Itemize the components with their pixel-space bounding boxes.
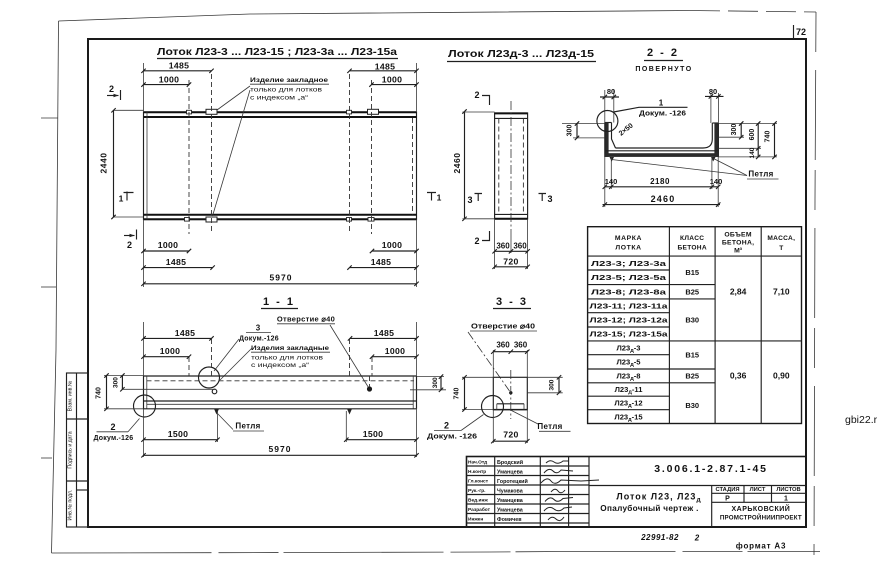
svg-text:Докум. -126: Докум. -126 [427,434,477,441]
svg-text:72: 72 [796,27,806,37]
svg-text:ЛОТКА: ЛОТКА [615,245,641,252]
svg-text:2: 2 [694,534,700,543]
svg-text:В25: В25 [685,288,699,297]
svg-text:Т: Т [779,245,783,252]
svg-text:2: 2 [109,84,114,94]
svg-text:740: 740 [765,131,772,143]
svg-text:Нач.Отд: Нач.Отд [468,460,487,466]
svg-text:Уманцева: Уманцева [497,469,524,475]
svg-text:Инв.№ подл.: Инв.№ подл. [68,490,74,521]
svg-text:Бродский: Бродский [497,459,523,466]
svg-text:Рук.-гр.: Рук.-гр. [468,488,485,494]
svg-text:720: 720 [503,430,518,440]
svg-text:300: 300 [549,379,556,390]
svg-text:Лоток Л23д-3 ... Л23д-15: Лоток Л23д-3 ... Л23д-15 [448,49,595,60]
svg-text:1000: 1000 [159,74,180,84]
svg-text:3: 3 [256,324,261,333]
svg-text:1000: 1000 [385,346,406,356]
svg-text:300: 300 [432,377,439,388]
svg-text:0,36: 0,36 [730,371,747,381]
svg-text:только для лотков: только для лотков [250,87,322,94]
svg-text:Л23-5; Л23-5а: Л23-5; Л23-5а [591,273,667,282]
svg-text:80: 80 [709,87,717,96]
svg-text:1485: 1485 [169,61,190,71]
svg-text:1500: 1500 [168,429,189,439]
svg-text:Уманцева: Уманцева [497,498,524,504]
svg-text:СТАДИЯ: СТАДИЯ [715,487,739,493]
svg-text:1485: 1485 [374,328,395,338]
svg-text:с индексом „а“: с индексом „а“ [250,95,309,102]
svg-text:Инжен: Инжен [468,517,483,523]
svg-text:Разработ: Разработ [468,506,491,513]
svg-text:только для лотков: только для лотков [251,355,323,362]
svg-text:3.006.1-2.87.1-45: 3.006.1-2.87.1-45 [654,463,768,475]
svg-text:Л23д-5: Л23д-5 [616,358,641,369]
svg-text:3: 3 [547,194,552,204]
svg-text:МАССА,: МАССА, [767,235,795,242]
svg-text:Н.контр: Н.контр [468,469,486,475]
svg-text:1500: 1500 [363,429,384,439]
svg-text:2460: 2460 [651,194,676,204]
svg-text:300: 300 [731,124,738,136]
svg-text:1: 1 [659,99,664,108]
svg-text:140: 140 [749,147,756,158]
svg-text:1 - 1: 1 - 1 [263,296,295,308]
svg-text:ЛИСТ: ЛИСТ [750,487,766,493]
svg-text:В25: В25 [685,372,699,381]
svg-text:600: 600 [749,129,756,141]
svg-text:БЕТОНА: БЕТОНА [677,245,706,252]
svg-text:Р: Р [725,496,730,503]
svg-text:22991-82: 22991-82 [640,533,679,542]
svg-text:Подпись и дата: Подпись и дата [68,431,74,468]
svg-text:2: 2 [444,421,449,431]
svg-text:МАРКА: МАРКА [615,235,642,242]
svg-text:БЕТОНА,: БЕТОНА, [722,240,755,247]
svg-text:2460: 2460 [452,153,462,174]
svg-text:ОБЪЕМ: ОБЪЕМ [724,232,752,239]
svg-text:Взам. инв.№: Взам. инв.№ [68,380,74,411]
svg-text:1485: 1485 [375,62,396,72]
svg-text:Л23-8; Л23-8а: Л23-8; Л23-8а [591,288,667,297]
svg-text:В30: В30 [685,401,699,410]
svg-text:720: 720 [503,256,518,266]
svg-text:1000: 1000 [382,74,403,84]
svg-text:Л23д-8: Л23д-8 [616,372,640,383]
svg-text:В30: В30 [685,316,699,325]
svg-text:Докум.-126: Докум.-126 [94,435,134,442]
svg-text:740: 740 [96,387,103,399]
svg-text:1000: 1000 [160,346,181,356]
svg-text:3 - 3: 3 - 3 [496,296,528,308]
svg-text:2: 2 [110,422,115,432]
svg-text:В15: В15 [685,268,699,277]
svg-text:Изделия закладные: Изделия закладные [251,345,329,352]
svg-text:140: 140 [605,177,618,186]
svg-text:80: 80 [607,87,615,96]
svg-text:Петля: Петля [235,422,260,431]
svg-text:ХАРЬКОВСКИЙ: ХАРЬКОВСКИЙ [731,504,790,513]
svg-text:3: 3 [467,195,472,205]
svg-text:Л23д-3: Л23д-3 [616,344,640,355]
svg-text:1000: 1000 [158,240,179,250]
svg-text:1485: 1485 [371,257,392,267]
svg-text:360: 360 [513,242,527,251]
svg-text:300: 300 [567,125,574,137]
svg-text:gbi22.ru: gbi22.ru [845,414,877,426]
svg-text:1: 1 [784,496,788,503]
svg-text:1: 1 [119,194,124,204]
svg-text:740: 740 [454,388,461,400]
svg-text:Гл.конст: Гл.конст [468,479,489,485]
svg-text:2: 2 [127,240,132,250]
svg-text:360: 360 [496,242,510,251]
svg-text:Вед.инж: Вед.инж [468,498,488,504]
svg-text:ЛИСТОВ: ЛИСТОВ [776,487,800,493]
svg-text:М³: М³ [734,248,743,255]
svg-text:Л23-3; Л23-3а: Л23-3; Л23-3а [591,259,667,268]
svg-text:2 - 2: 2 - 2 [647,47,679,59]
svg-text:0,90: 0,90 [773,371,790,381]
svg-text:7,10: 7,10 [773,287,790,297]
svg-text:Петля: Петля [537,422,562,431]
svg-text:Л23-11; Л23-11а: Л23-11; Л23-11а [590,302,669,311]
svg-text:2: 2 [474,90,479,100]
svg-text:Докум. -126: Докум. -126 [639,111,686,118]
svg-text:ПОВЕРНУТО: ПОВЕРНУТО [635,66,692,73]
svg-text:300: 300 [113,377,120,388]
svg-text:2: 2 [474,236,479,246]
svg-text:360: 360 [514,341,528,350]
svg-text:5970: 5970 [270,273,293,283]
svg-text:Изделие закладное: Изделие закладное [250,77,328,84]
svg-text:Докум.-126: Докум.-126 [239,336,279,343]
svg-text:с индексом „а“: с индексом „а“ [251,362,310,369]
svg-text:КЛАСС: КЛАСС [680,235,704,242]
svg-text:Петля: Петля [748,170,773,179]
svg-text:2,84: 2,84 [730,287,747,297]
svg-text:Чумакова: Чумакова [497,488,524,494]
svg-text:Л23-12; Л23-12а: Л23-12; Л23-12а [590,316,669,325]
svg-text:1000: 1000 [382,240,403,250]
svg-text:2180: 2180 [650,177,670,186]
svg-text:1: 1 [437,193,442,203]
svg-text:140: 140 [710,177,723,186]
svg-text:Отверстие ⌀40: Отверстие ⌀40 [471,322,535,331]
svg-text:5970: 5970 [269,444,292,454]
svg-text:формат А3: формат А3 [736,542,786,551]
svg-text:В15: В15 [685,351,699,360]
svg-text:1485: 1485 [166,257,187,267]
svg-text:Опалубочный чертеж .: Опалубочный чертеж . [600,503,698,513]
svg-text:Фомичев: Фомичев [497,517,522,523]
svg-text:360: 360 [496,341,510,350]
svg-text:1485: 1485 [175,328,196,338]
svg-text:Л23-15; Л23-15а: Л23-15; Л23-15а [590,330,669,339]
svg-text:Уманцева: Уманцева [497,507,524,513]
svg-text:Отверстие ⌀40: Отверстие ⌀40 [277,315,335,324]
svg-text:ПРОМСТРОЙНИИПРОЕКТ: ПРОМСТРОЙНИИПРОЕКТ [720,514,802,522]
svg-text:Лоток Л23-3 ... Л23-15 ; Л23-3: Лоток Л23-3 ... Л23-15 ; Л23-3а ... Л23-… [157,47,398,58]
svg-text:Горотецкий: Горотецкий [497,478,528,485]
svg-text:2440: 2440 [99,153,109,174]
